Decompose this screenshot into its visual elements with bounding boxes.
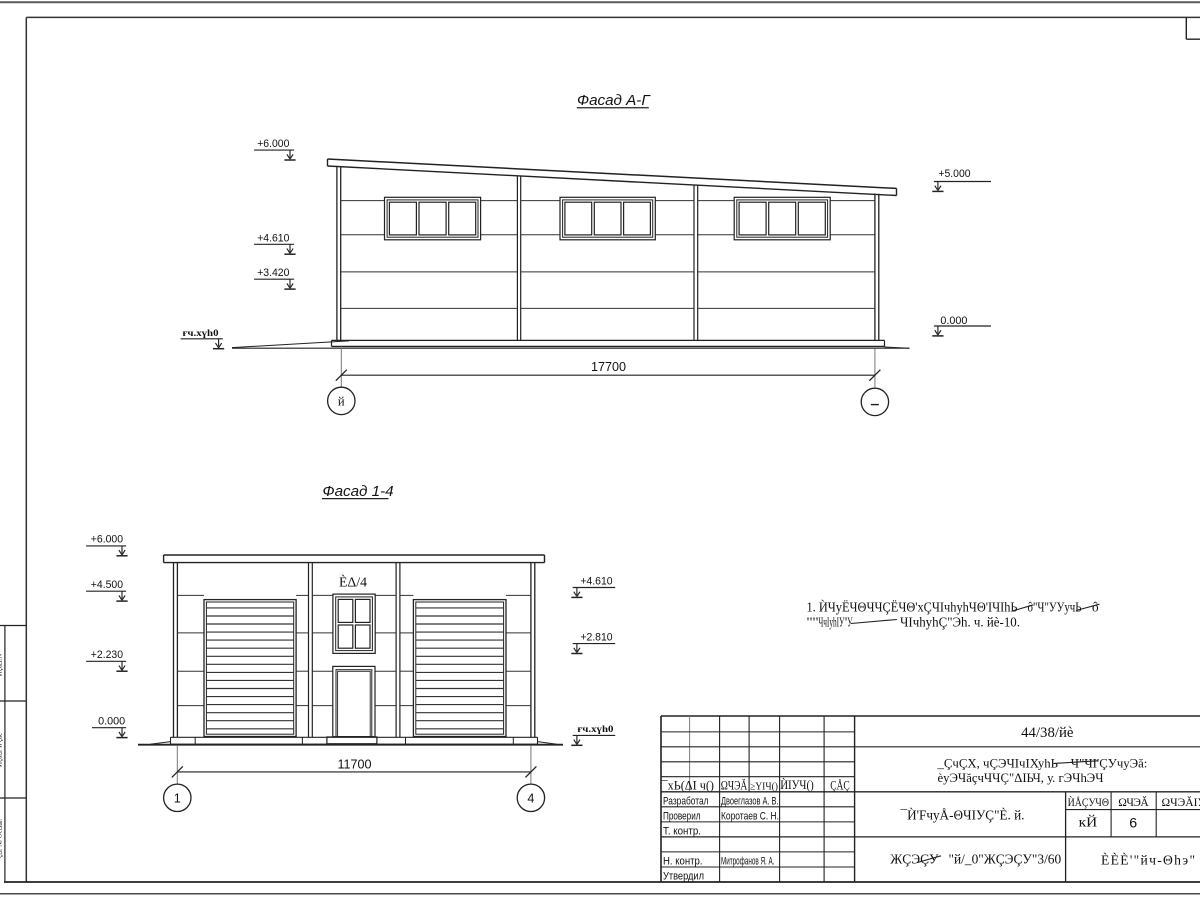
- svg-text:ΩЧЭĂ: ΩЧЭĂ: [721, 778, 748, 792]
- svg-text:+6.000: +6.000: [257, 138, 289, 150]
- svg-text:0.000: 0.000: [98, 716, 125, 728]
- svg-text:1: 1: [174, 792, 181, 806]
- svg-text:+5.000: +5.000: [938, 168, 970, 180]
- svg-text:+2.230: +2.230: [91, 649, 123, 661]
- svg-text:ЍIУЧ(): ЍIУЧ(): [780, 778, 814, 792]
- svg-text:44/38/йè: 44/38/йè: [1021, 725, 1074, 741]
- svg-text:0.000: 0.000: [940, 315, 967, 327]
- svg-text:+4.610: +4.610: [580, 576, 612, 588]
- svg-text:ғч.хүh0: ғч.хүh0: [577, 725, 613, 735]
- svg-text:èуЭЧăçчЧЧÇ"ΔIЬЧ, у. гЭЧhЭЧ: èуЭЧăçчЧЧÇ"ΔIЬЧ, у. гЭЧhЭЧ: [938, 771, 1104, 785]
- svg-text:+4.500: +4.500: [91, 579, 123, 591]
- svg-text:Т. контр.: Т. контр.: [663, 826, 701, 838]
- svg-text:Проверил: Проверил: [663, 811, 701, 823]
- svg-text:Фасад 1-4: Фасад 1-4: [323, 483, 394, 500]
- svg-text:ЍçåΔ.Ñ: ЍçåΔ.Ñ: [0, 654, 4, 677]
- svg-text:+3.420: +3.420: [257, 267, 289, 279]
- svg-text:+6.000: +6.000: [91, 534, 123, 546]
- svg-text:ғч.хүh0: ғч.хүh0: [183, 329, 219, 339]
- svg-text:¯çΔ. № ΘéΔΩ.: ¯çΔ. № ΘéΔΩ.: [0, 818, 4, 862]
- svg-text:кЙ: кЙ: [1079, 815, 1098, 830]
- svg-text:""""ЧчIуhIУ"У: """"ЧчIуhIУ"У: [807, 614, 853, 629]
- svg-text:ЧIчhуhÇ"Эh. ч. йè-10.: ЧIчhуhÇ"Эh. ч. йè-10.: [900, 614, 1020, 629]
- svg-text:ЍçåΔ. й çàέ: ЍçåΔ. й çàέ: [0, 733, 4, 767]
- svg-text:4: 4: [527, 792, 534, 806]
- svg-text:Разработал: Разработал: [663, 795, 709, 807]
- svg-text:Митрофанов Я. А.: Митрофанов Я. А.: [721, 856, 775, 868]
- svg-text:17700: 17700: [591, 360, 626, 374]
- svg-text:_ÇчÇХ, чÇЭЧIчIХуhЬ Ч"ЧI'ÇУч: _ÇчÇХ, чÇЭЧIчIХуhЬ Ч"ЧI'ÇУчуЭă:: [937, 757, 1148, 771]
- svg-text:¯хЬ(ΔI ч(): ¯хЬ(ΔI ч(): [660, 778, 714, 792]
- svg-text:Двоеглазов А. В.: Двоеглазов А. В.: [721, 795, 779, 807]
- svg-text:11700: 11700: [337, 757, 371, 771]
- svg-text:ô"Ч"УУучЬ: ô"Ч"УУучЬ: [1028, 599, 1082, 614]
- svg-text:1. ЍЧуЁЧΘЧЧÇЁЧΘ'хÇЧIчhуhЧΘ'IЧI: 1. ЍЧуЁЧΘЧЧÇЁЧΘ'хÇЧIчhуhЧΘ'IЧIhЬ: [807, 599, 1018, 614]
- svg-text:й: й: [338, 395, 345, 409]
- svg-text:¯Ѝ'FчуÅ-ΘЧIУÇ"È. й.: ¯Ѝ'FчуÅ-ΘЧIУÇ"È. й.: [900, 807, 1025, 822]
- svg-text:Фасад А-Г: Фасад А-Г: [577, 92, 651, 109]
- svg-text:ÈΔ/4: ÈΔ/4: [339, 573, 367, 589]
- svg-text:≥YIЧ(): ≥YIЧ(): [750, 781, 778, 792]
- svg-text:+4.610: +4.610: [257, 232, 289, 244]
- svg-text:6: 6: [1129, 816, 1137, 832]
- svg-text:+2.810: +2.810: [580, 632, 612, 644]
- svg-text:ЖÇЭÇУ "й/_0"ЖÇЭÇУ"3/60: ЖÇЭÇУ "й/_0"ЖÇЭÇУ"3/60: [890, 852, 1061, 867]
- svg-text:ЍÅÇУЧΘ: ЍÅÇУЧΘ: [1068, 795, 1109, 809]
- svg-text:Н. контр.: Н. контр.: [663, 856, 703, 868]
- svg-text:ΩЧЭĂIУ: ΩЧЭĂIУ: [1162, 795, 1200, 809]
- svg-text:Коротаев С. Н.: Коротаев С. Н.: [721, 811, 779, 823]
- svg-text:Утвердил: Утвердил: [663, 871, 704, 883]
- svg-text:ΩЧЭĂ: ΩЧЭĂ: [1118, 795, 1149, 809]
- svg-text:ô: ô: [1092, 599, 1099, 614]
- svg-text:ÇÅÇ: ÇÅÇ: [830, 778, 850, 792]
